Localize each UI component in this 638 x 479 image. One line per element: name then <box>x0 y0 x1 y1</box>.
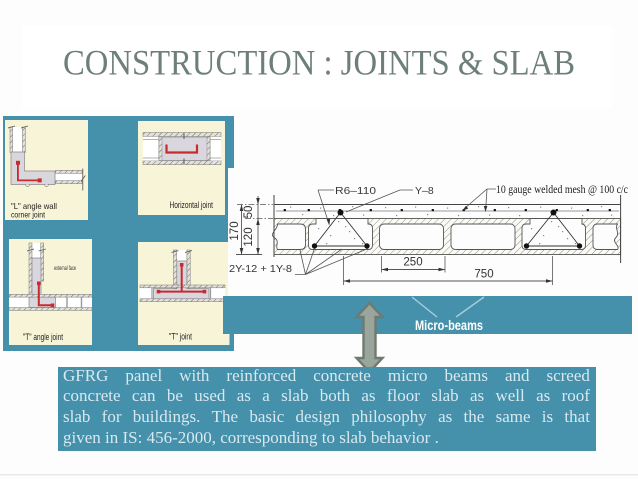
svg-text:external face: external face <box>54 265 76 272</box>
svg-text:750: 750 <box>474 269 493 281</box>
svg-text:Y–8: Y–8 <box>415 185 434 197</box>
svg-text:Micro-beams: Micro-beams <box>415 318 483 333</box>
svg-text:"T" angle joint: "T" angle joint <box>23 332 63 343</box>
svg-text:corner joint: corner joint <box>11 210 46 220</box>
svg-text:250: 250 <box>403 257 422 269</box>
svg-text:120: 120 <box>243 227 255 246</box>
svg-text:Horizontal joint: Horizontal joint <box>170 200 214 211</box>
svg-text:"T" joint: "T" joint <box>169 332 192 343</box>
svg-text:2Y-12 + 1Y-8: 2Y-12 + 1Y-8 <box>229 263 292 275</box>
svg-text:R6–110: R6–110 <box>335 185 376 197</box>
svg-text:170: 170 <box>229 221 241 240</box>
svg-text:10 gauge welded mesh @ 100 c/c: 10 gauge welded mesh @ 100 c/c <box>496 184 628 196</box>
svg-text:50: 50 <box>243 206 255 219</box>
